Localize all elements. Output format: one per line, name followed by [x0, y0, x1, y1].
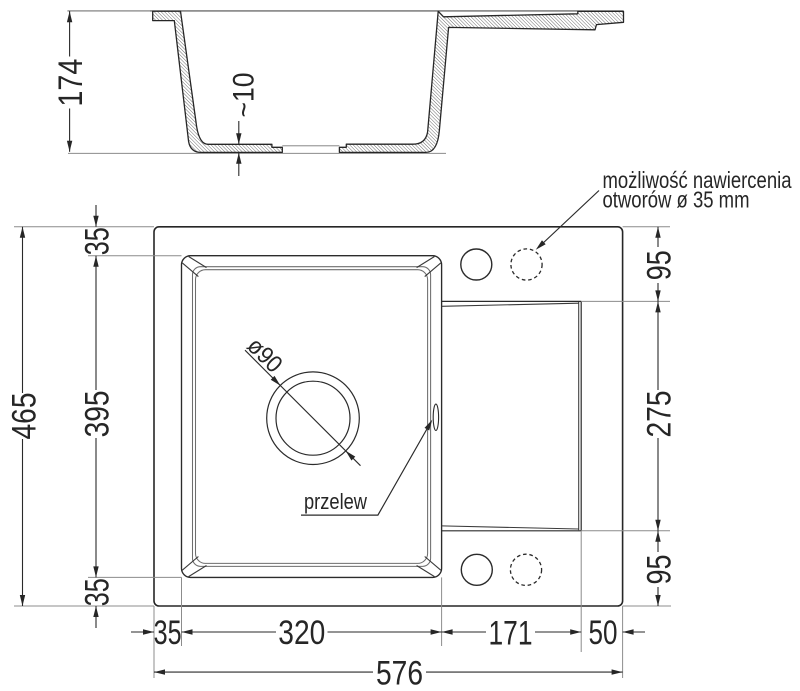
svg-text:95: 95	[640, 555, 678, 585]
svg-text:171: 171	[489, 615, 533, 653]
svg-text:576: 576	[376, 655, 423, 691]
svg-text:~10: ~10	[228, 73, 261, 118]
svg-text:95: 95	[640, 250, 678, 280]
svg-text:174: 174	[52, 59, 90, 107]
svg-text:50: 50	[589, 614, 618, 652]
svg-text:przelew: przelew	[304, 489, 367, 514]
svg-text:320: 320	[278, 614, 325, 652]
svg-text:35: 35	[154, 614, 182, 652]
svg-text:465: 465	[5, 393, 43, 440]
svg-text:35: 35	[78, 578, 116, 606]
svg-text:395: 395	[78, 390, 116, 437]
svg-text:275: 275	[640, 391, 678, 438]
svg-text:otworów ø 35 mm: otworów ø 35 mm	[603, 187, 750, 213]
svg-text:35: 35	[78, 227, 116, 255]
